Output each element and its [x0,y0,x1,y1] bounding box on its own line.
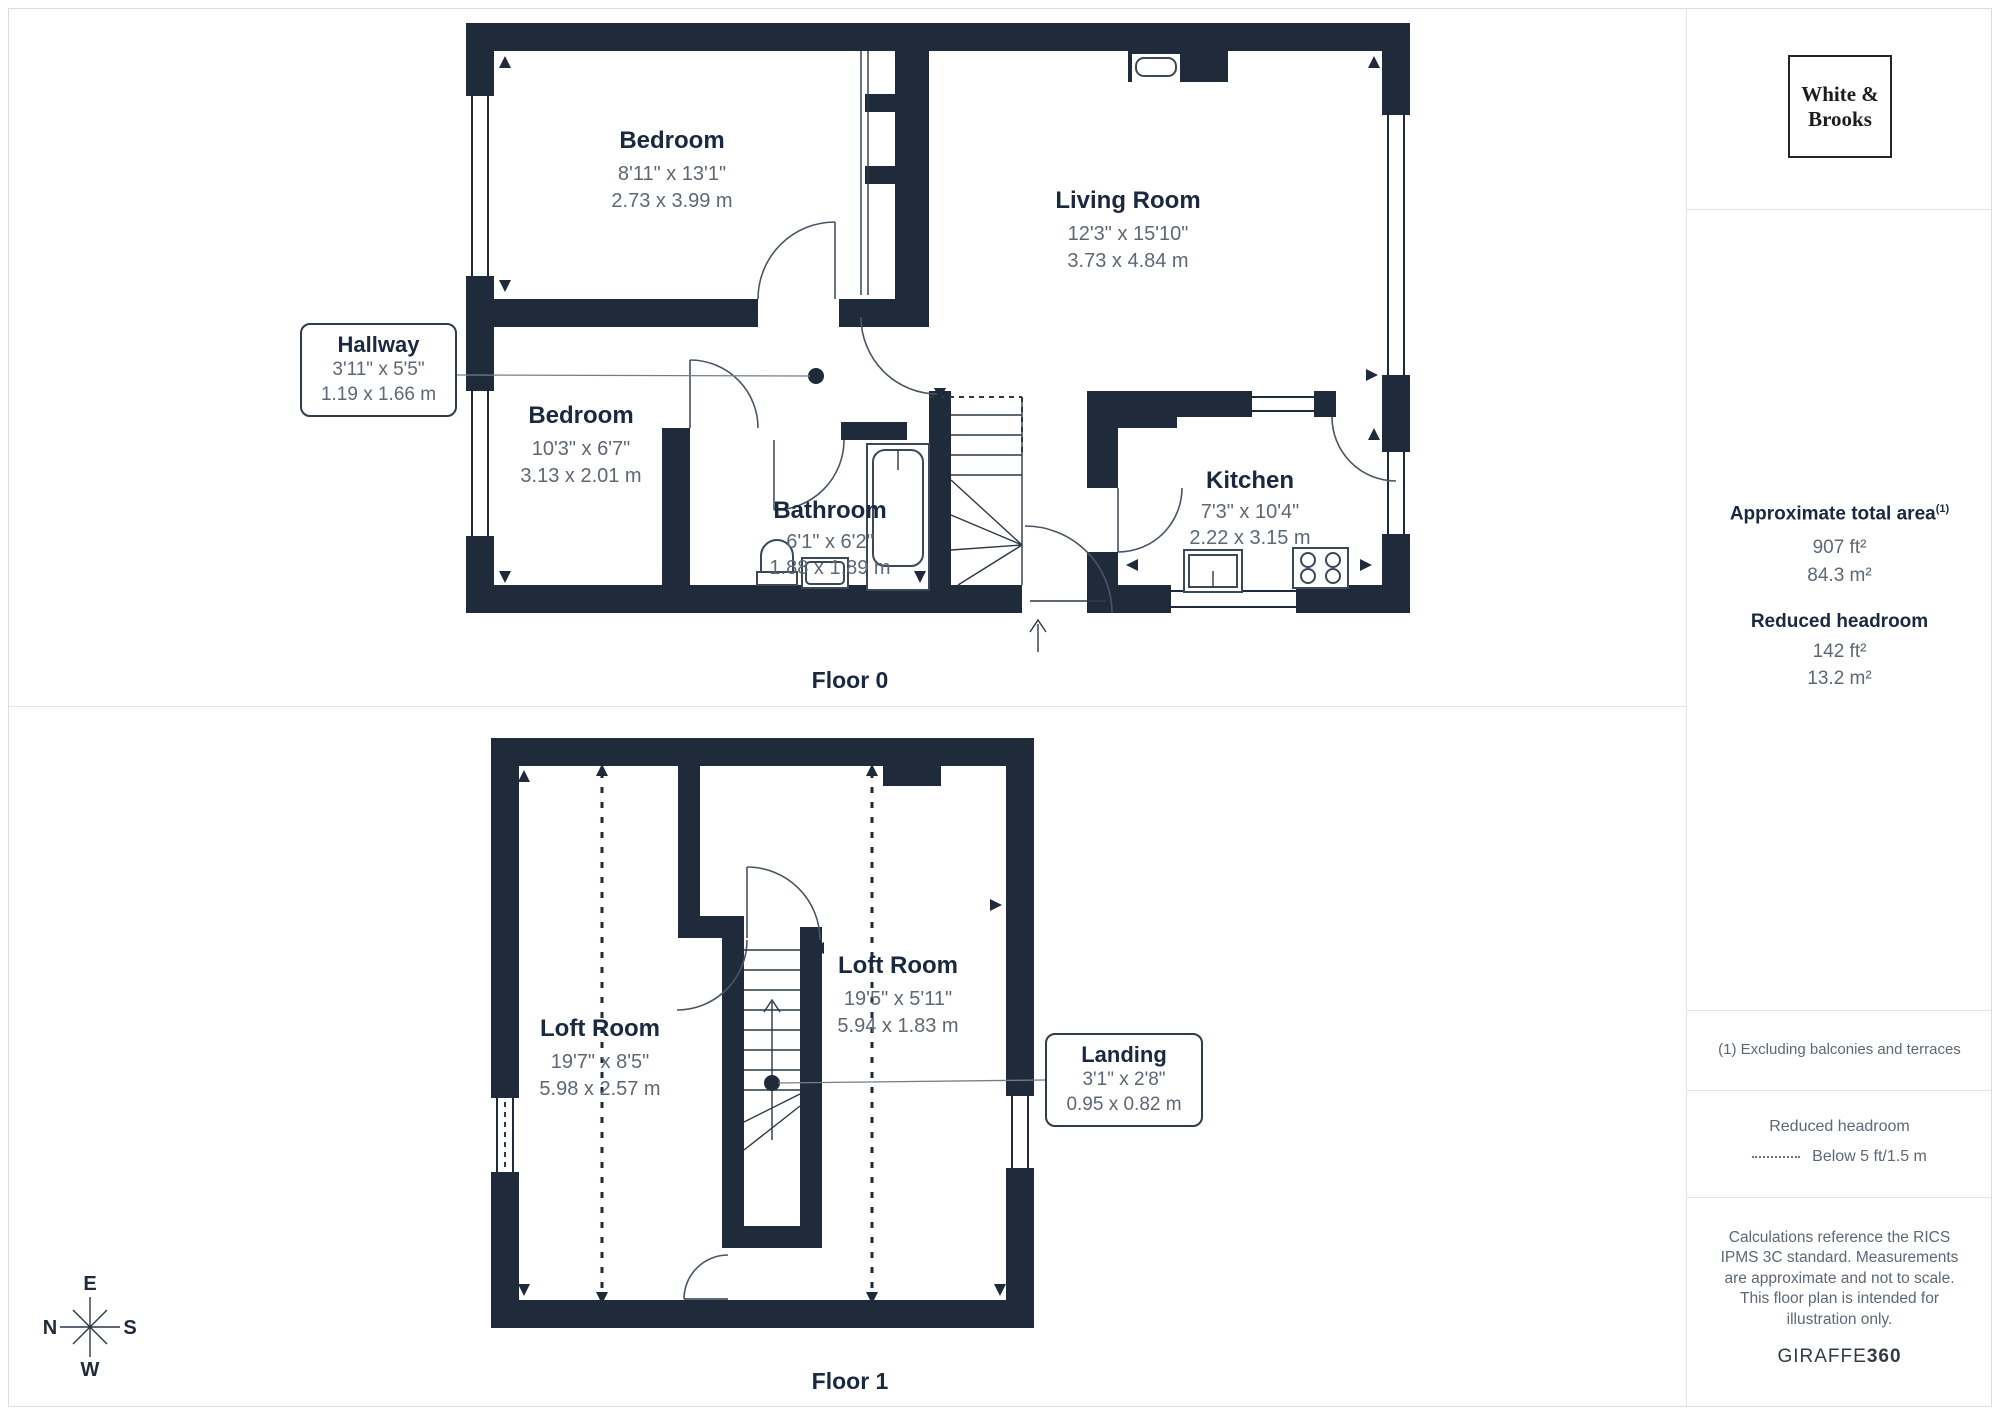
reduced-headroom-m: 13.2 m² [1687,668,1992,690]
room-label-loft-right: Loft Room [838,952,958,979]
compass-top: E [83,1273,96,1295]
floor1-windows [491,1096,1034,1172]
camera-point [764,1075,780,1091]
room-dim-living-imperial: 12'3" x 15'10" [1068,223,1189,245]
floor1-label: Floor 1 [812,1368,889,1394]
total-area-ft: 907 ft² [1687,537,1992,559]
reduced-headroom-heading: Reduced headroom [1687,611,1992,633]
floor0-plan: Bedroom 8'11" x 13'1" 2.73 x 3.99 m Livi… [457,23,1410,693]
dotted-line-icon [1752,1156,1800,1158]
compass-bottom: W [81,1359,100,1381]
floor1-plan: Loft Room 19'7" x 8'5" 5.98 x 2.57 m Lof… [491,738,1045,1394]
giraffe360-suffix: 360 [1867,1346,1902,1367]
entrance-arrow-icon [1030,620,1046,652]
room-dim-bedroom1-imperial: 8'11" x 13'1" [618,163,726,185]
reduced-headroom-ft: 142 ft² [1687,641,1992,663]
total-area-heading: Approximate total area(1) [1687,503,1992,525]
room-dim-bedroom2-imperial: 10'3" x 6'7" [532,438,631,460]
room-dim-bathroom-metric: 1.88 x 1.89 m [769,557,890,579]
landing-callout-metric: 0.95 x 0.82 m [1047,1093,1201,1118]
kitchen-sink-icon [1184,550,1242,592]
landing-callout: Landing 3'1" x 2'8" 0.95 x 0.82 m [1045,1033,1203,1127]
hallway-callout: Hallway 3'11" x 5'5" 1.19 x 1.66 m [300,323,457,417]
landing-callout-name: Landing [1047,1042,1201,1068]
giraffe360-name: GIRAFFE [1777,1346,1866,1367]
hallway-callout-metric: 1.19 x 1.66 m [302,383,455,408]
agency-logo: White & Brooks [1788,55,1892,158]
room-dim-bedroom1-metric: 2.73 x 3.99 m [611,190,732,212]
camera-point [808,368,824,384]
area-footnote: (1) Excluding balconies and terraces [1687,1041,1992,1058]
legend-row: Below 5 ft/1.5 m [1687,1148,1992,1166]
hallway-leader-line [457,375,810,376]
giraffe360-brand: GIRAFFE360 [1687,1346,1992,1368]
compass-right: S [123,1317,136,1339]
floor1-stairs [744,950,800,1150]
room-dim-loft-right-metric: 5.94 x 1.83 m [837,1015,958,1037]
compass-icon: E N S W [43,1273,137,1381]
landing-callout-imperial: 3'1" x 2'8" [1047,1068,1201,1093]
room-dim-living-metric: 3.73 x 4.84 m [1067,250,1188,272]
hob-icon [1293,548,1348,588]
room-dim-kitchen-metric: 2.22 x 3.15 m [1189,527,1310,549]
total-area-footnote-marker: (1) [1936,503,1949,515]
room-dim-bedroom2-metric: 3.13 x 2.01 m [520,465,641,487]
legend-value: Below 5 ft/1.5 m [1812,1148,1927,1165]
room-dim-loft-left-imperial: 19'7" x 8'5" [551,1051,650,1073]
floor0-label: Floor 0 [812,667,889,693]
room-dim-bathroom-imperial: 6'1" x 6'2" [786,531,873,553]
compass-left: N [43,1317,57,1339]
disclaimer-text: Calculations reference the RICS IPMS 3C … [1712,1228,1967,1330]
room-dim-loft-right-imperial: 19'5" x 5'11" [844,988,952,1010]
agency-logo-line2: Brooks [1801,107,1879,131]
total-area-m: 84.3 m² [1687,565,1992,587]
agency-logo-line1: White & [1801,82,1879,106]
hallway-callout-imperial: 3'11" x 5'5" [302,358,455,383]
room-label-living: Living Room [1055,187,1200,214]
room-label-bedroom2: Bedroom [528,402,633,429]
room-dim-loft-left-metric: 5.98 x 2.57 m [539,1078,660,1100]
hallway-callout-name: Hallway [302,332,455,358]
floor0-doors [690,222,1396,613]
room-dim-kitchen-imperial: 7'3" x 10'4" [1201,501,1300,523]
room-label-kitchen: Kitchen [1206,467,1294,494]
room-label-bathroom: Bathroom [773,497,886,524]
room-label-loft-left: Loft Room [540,1015,660,1042]
floorplan-drawing: Bedroom 8'11" x 13'1" 2.73 x 3.99 m Livi… [0,0,2000,1415]
legend-title: Reduced headroom [1687,1118,1992,1136]
room-label-bedroom1: Bedroom [619,127,724,154]
total-area-heading-text: Approximate total area [1730,503,1936,524]
